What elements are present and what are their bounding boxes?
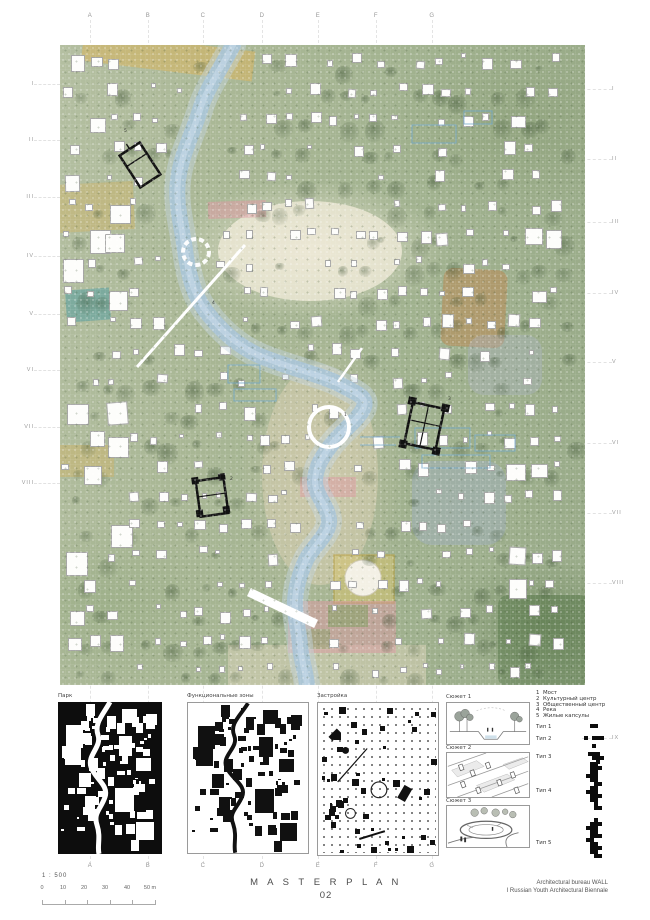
map-marker-number: 1: [344, 413, 347, 418]
type-label: Тип 1: [536, 724, 551, 730]
figure-ground-rect: [97, 768, 106, 778]
figure-ground-rect: [291, 811, 297, 820]
development-block: [419, 797, 423, 801]
grid-dash-horizontal: [34, 140, 60, 141]
grid-dash-horizontal: [582, 443, 612, 444]
ruler-numeral: IV: [16, 253, 34, 259]
figure-ground-rect: [284, 742, 287, 745]
figure-ground-rect: [214, 761, 219, 768]
development-block: [324, 712, 327, 715]
development-block: [330, 803, 333, 806]
scale-bar-tick: [155, 900, 156, 904]
grid-dash-horizontal: [34, 427, 60, 428]
grid-dash-horizontal: [582, 293, 612, 294]
ruler-numeral: VII: [612, 510, 622, 516]
development-block: [371, 847, 376, 852]
development-block: [380, 726, 385, 731]
ruler-letter: B: [146, 13, 151, 19]
figure-ground-rect: [268, 825, 276, 835]
figure-ground-rect: [192, 830, 195, 833]
figure-ground-rect: [109, 800, 112, 804]
panel-development-figure: [317, 702, 439, 856]
ruler-numeral: IX: [612, 735, 619, 741]
map-marker-number: 4: [212, 301, 215, 306]
figure-ground-rect: [228, 727, 231, 730]
figure-ground-rect: [219, 797, 230, 810]
development-block: [327, 779, 330, 782]
figure-ground-rect: [130, 811, 135, 818]
type-pattern-cell: [598, 854, 602, 858]
development-block: [355, 740, 359, 744]
figure-ground-rect: [263, 756, 269, 765]
ruler-numeral: I: [612, 86, 615, 92]
ruler-letter: E: [316, 13, 321, 19]
credits-block: Architectural bureau WALL I Russian Yout…: [507, 879, 608, 895]
legend-item-label: Жилые капсулы: [543, 714, 589, 720]
figure-ground-rect: [92, 726, 95, 729]
figure-ground-rect: [148, 734, 151, 738]
figure-ground-rect: [281, 813, 290, 820]
development-block: [387, 710, 391, 714]
figure-ground-rect: [254, 717, 256, 718]
figure-ground-rect: [106, 727, 110, 732]
figure-ground-rect: [115, 788, 133, 813]
type-pattern-row: [584, 736, 604, 740]
figure-ground-rect: [146, 810, 152, 819]
figure-ground-rect: [135, 784, 138, 788]
figure-ground-rect: [221, 705, 230, 717]
masterplan-map: 12345: [60, 45, 585, 685]
development-block: [352, 779, 359, 786]
scene3-perspective-sketch: [447, 806, 529, 847]
figure-ground-rect: [235, 792, 244, 797]
title-block: M A S T E R P L A N 02: [240, 877, 412, 901]
figure-ground-rect: [81, 760, 86, 767]
figure-ground-rect: [86, 704, 95, 716]
type-pattern: [590, 724, 598, 728]
ruler-letter: C: [201, 13, 206, 19]
figure-ground-rect: [294, 780, 300, 785]
type-pattern-row: [586, 854, 602, 858]
development-block: [388, 848, 391, 851]
development-block: [421, 835, 426, 840]
development-block: [383, 746, 387, 750]
scale-bar-line: [42, 900, 156, 905]
ruler-letter: A: [88, 863, 93, 869]
figure-ground-rect: [143, 716, 148, 723]
figure-ground-rect: [109, 814, 114, 819]
ruler-numeral: V: [612, 359, 617, 365]
grid-dash-horizontal: [582, 362, 612, 363]
panel-label-scene3: Сюжет 3: [446, 798, 471, 804]
figure-ground-rect: [120, 761, 123, 764]
map-markers: 12345: [60, 45, 585, 685]
development-block: [382, 778, 386, 782]
figure-ground-rect: [136, 758, 151, 771]
scale-number: 10: [60, 885, 66, 891]
scale-number: 0: [40, 885, 43, 891]
development-block: [339, 707, 346, 714]
ruler-numeral: VIII: [612, 580, 624, 586]
development-block: [331, 774, 338, 781]
scale-label: 1 : 500: [42, 873, 67, 879]
type-label: Тип 4: [536, 788, 551, 794]
figure-ground-rect: [131, 840, 139, 851]
figure-ground-rect: [249, 823, 253, 827]
ruler-letter: D: [260, 13, 265, 19]
ruler-letter: B: [146, 863, 151, 869]
figure-ground-rect: [275, 744, 278, 749]
panel-scene2: [446, 752, 530, 798]
type-pattern-cell: [594, 724, 598, 728]
panel-label-zones: Функциональные зоны: [187, 693, 254, 699]
figure-ground-rect: [146, 714, 157, 725]
development-block: [408, 720, 411, 723]
figure-ground-rect: [280, 823, 297, 841]
figure-ground-rect: [275, 788, 282, 795]
development-block: [371, 828, 374, 831]
figure-ground-rect: [258, 772, 265, 776]
figure-ground-rect: [137, 812, 146, 819]
panel-label-scene1: Сюжет 1: [446, 694, 471, 700]
type-label: Тип 3: [536, 754, 551, 760]
figure-ground-rect: [117, 771, 124, 775]
figure-ground-rect: [88, 809, 97, 821]
figure-ground-rect: [210, 818, 213, 820]
grid-dash-horizontal: [34, 197, 60, 198]
ruler-numeral: III: [612, 219, 620, 225]
ruler-letter: D: [260, 863, 265, 869]
scene1-section-sketch: [447, 703, 529, 744]
grid-dash-horizontal: [34, 370, 60, 371]
grid-dash-horizontal: [582, 583, 612, 584]
figure-ground-rect: [61, 829, 64, 832]
figure-ground-rect: [75, 733, 91, 744]
figure-ground-rect: [149, 779, 155, 784]
figure-ground-rect: [108, 777, 114, 786]
figure-ground-rect: [288, 750, 295, 757]
development-block: [431, 712, 437, 718]
figure-ground-rect: [259, 737, 273, 758]
development-block: [322, 776, 326, 780]
figure-ground-rect: [106, 811, 109, 815]
ruler-letter: G: [429, 863, 434, 869]
figure-ground-rect: [94, 797, 99, 805]
figure-ground-rect: [210, 789, 219, 794]
figure-ground-rect: [229, 797, 231, 799]
scale-bar-tick: [87, 900, 88, 904]
figure-ground-rect: [143, 749, 150, 756]
figure-ground-rect: [248, 801, 251, 805]
panel-label-scene2: Сюжет 2: [446, 745, 471, 751]
development-block: [363, 814, 368, 819]
figure-ground-rect: [68, 788, 75, 794]
figure-ground-rect: [64, 805, 69, 810]
type-pattern-row: [586, 806, 602, 810]
figure-ground-rect: [293, 735, 296, 739]
panel-park-figure: [58, 702, 162, 854]
figure-ground-rect: [144, 738, 147, 740]
figure-ground-rect: [241, 708, 244, 710]
development-block: [331, 822, 337, 828]
figure-ground-rect: [278, 779, 281, 781]
figure-ground-rect: [127, 770, 131, 776]
figure-ground-rect: [132, 743, 135, 748]
grid-dash-horizontal: [34, 314, 60, 315]
grid-dash-horizontal: [582, 222, 612, 223]
figure-ground-rect: [208, 734, 224, 745]
figure-ground-rect: [233, 769, 242, 779]
panel-scene3: [446, 805, 530, 848]
development-block: [355, 829, 359, 833]
figure-ground-rect: [200, 789, 207, 795]
development-block: [336, 800, 343, 807]
development-block: [393, 780, 400, 787]
figure-ground-rect: [255, 789, 273, 814]
grid-dash-horizontal: [582, 159, 612, 160]
grid-dash-horizontal: [34, 256, 60, 257]
figure-ground-rect: [196, 747, 212, 766]
grid-dash-horizontal: [582, 89, 612, 90]
development-block: [325, 815, 330, 820]
figure-ground-rect: [255, 826, 262, 837]
figure-ground-rect: [231, 798, 236, 806]
scale-number: 40: [124, 885, 130, 891]
ruler-numeral: II: [612, 156, 617, 162]
figure-ground-rect: [98, 791, 107, 796]
scene2-axon-sketch: [447, 753, 529, 797]
masterplan-sheet: ABCDEFG ABCDEFG IIIIIIIVVVIVIIVIII IIIII…: [0, 0, 650, 920]
development-block: [431, 759, 437, 765]
map-marker-number: 5: [124, 129, 127, 134]
sheet-number: 02: [240, 890, 412, 901]
ruler-numeral: VI: [16, 367, 34, 373]
figure-ground-rect: [275, 718, 281, 728]
figure-ground-rect: [280, 748, 287, 753]
figure-ground-rect: [212, 774, 224, 788]
type-pattern-cell: [600, 736, 604, 740]
figure-ground-rect: [119, 736, 133, 757]
development-block: [385, 841, 389, 845]
figure-ground-rect: [93, 718, 100, 724]
ruler-numeral: III: [16, 194, 34, 200]
legend-list: 1Мост2Культурный центр3Общественный цент…: [536, 691, 641, 720]
figure-ground-rect: [219, 729, 224, 732]
figure-ground-rect: [289, 739, 292, 741]
development-block: [356, 773, 360, 777]
development-block: [340, 850, 343, 853]
figure-ground-rect: [109, 745, 112, 750]
figure-ground-rect: [248, 746, 251, 751]
figure-ground-rect: [260, 762, 263, 765]
figure-ground-rect: [115, 825, 122, 836]
type-label: Тип 5: [536, 840, 551, 846]
figure-ground-rect: [103, 762, 106, 766]
type-pattern: [588, 744, 604, 764]
figure-ground-rect: [246, 778, 252, 787]
figure-ground-rect: [269, 771, 273, 777]
figure-ground-rect: [241, 747, 246, 751]
figure-ground-rect: [114, 716, 116, 717]
ruler-numeral: VIII: [16, 480, 34, 486]
scale-bar-tick: [65, 900, 66, 904]
development-block: [361, 788, 366, 793]
development-block: [395, 848, 398, 851]
figure-ground-rect: [85, 728, 90, 731]
legend-item: 5Жилые капсулы: [536, 714, 641, 720]
development-block: [430, 840, 436, 846]
figure-ground-rect: [103, 746, 108, 750]
type-label: Тип 2: [536, 736, 551, 742]
figure-ground-rect: [65, 746, 81, 765]
legend-item-number: 5: [536, 714, 543, 720]
figure-ground-rect: [93, 796, 95, 798]
figure-ground-rect: [77, 827, 85, 831]
scale-bar-tick: [110, 900, 111, 904]
development-block: [412, 727, 418, 733]
figure-ground-rect: [91, 782, 94, 784]
figure-ground-rect: [140, 741, 143, 744]
grid-dash-horizontal: [34, 483, 60, 484]
credit-biennale: I Russian Youth Architectural Biennale: [507, 887, 608, 895]
development-block: [335, 815, 339, 819]
development-block: [415, 712, 419, 716]
figure-ground-rect: [253, 746, 258, 749]
ruler-letter: C: [201, 863, 206, 869]
development-block: [402, 836, 405, 839]
panel-scene1: [446, 702, 530, 745]
figure-ground-rect: [135, 778, 138, 780]
ruler-letter: A: [88, 13, 93, 19]
figure-ground-rect: [229, 719, 236, 725]
figure-ground-rect: [101, 738, 103, 740]
ruler-numeral: II: [16, 137, 34, 143]
figure-ground-rect: [291, 715, 302, 726]
figure-ground-rect: [210, 828, 218, 832]
figure-ground-rect: [132, 717, 138, 727]
figure-ground-rect: [104, 707, 107, 709]
type-pattern: [586, 762, 602, 810]
figure-ground-rect: [278, 785, 281, 789]
figure-ground-rect: [110, 755, 115, 761]
figure-ground-rect: [226, 783, 229, 785]
scale-bar-tick: [42, 900, 43, 904]
panel-zones-figure: [187, 702, 309, 854]
figure-ground-rect: [114, 745, 119, 748]
scale-number: 30: [102, 885, 108, 891]
ruler-numeral: VII: [16, 424, 34, 430]
figure-ground-rect: [279, 759, 294, 772]
figure-ground-rect: [195, 806, 200, 811]
figure-ground-rect: [244, 728, 248, 733]
development-block: [424, 789, 430, 795]
development-block: [407, 846, 414, 853]
development-block: [322, 757, 327, 762]
figure-ground-rect: [287, 717, 292, 724]
figure-ground-rect: [89, 758, 98, 771]
ruler-numeral: VI: [612, 440, 619, 446]
grid-dash-horizontal: [34, 84, 60, 85]
type-pattern-row: [590, 724, 598, 728]
figure-ground-rect: [117, 723, 124, 734]
figure-ground-rect: [274, 841, 282, 852]
credit-bureau: Architectural bureau WALL: [507, 879, 608, 887]
figure-ground-rect: [77, 788, 86, 793]
figure-ground-rect: [79, 773, 91, 787]
figure-ground-rect: [122, 755, 128, 764]
panel-label-park: Парк: [58, 693, 72, 699]
development-block: [362, 729, 368, 735]
figure-ground-rect: [249, 756, 254, 762]
figure-ground-rect: [224, 759, 233, 772]
ruler-letter: G: [429, 13, 434, 19]
figure-ground-rect: [238, 739, 240, 741]
grid-dash-horizontal: [582, 513, 612, 514]
sheet-title: M A S T E R P L A N: [240, 877, 412, 888]
ruler-letter: E: [316, 863, 321, 869]
ruler-numeral: V: [16, 311, 34, 317]
type-pattern: [586, 818, 602, 858]
figure-ground-rect: [273, 812, 278, 819]
development-block: [337, 747, 343, 753]
development-block: [351, 722, 357, 728]
map-marker-number: 3: [448, 397, 451, 402]
figure-ground-rect: [77, 817, 80, 819]
figure-ground-rect: [223, 810, 232, 822]
development-block: [357, 844, 361, 848]
ruler-letter: F: [374, 863, 378, 869]
ruler-numeral: IV: [612, 290, 619, 296]
figure-ground-rect: [241, 763, 244, 767]
figure-ground-rect: [136, 822, 153, 840]
map-marker-number: 2: [230, 477, 233, 482]
type-pattern-cell: [598, 806, 602, 810]
figure-ground-rect: [126, 824, 134, 834]
figure-ground-rect: [247, 815, 252, 820]
scale-number: 50 m: [144, 885, 156, 891]
scale-bar-tick: [132, 900, 133, 904]
ruler-letter: F: [374, 13, 378, 19]
development-block: [334, 733, 341, 740]
figure-ground-rect: [110, 822, 114, 826]
figure-ground-rect: [257, 724, 264, 735]
panel-label-dev: Застройка: [317, 693, 347, 699]
scale-number: 20: [81, 885, 87, 891]
type-pattern: [584, 736, 604, 740]
ruler-numeral: I: [16, 81, 34, 87]
figure-ground-rect: [244, 812, 247, 816]
